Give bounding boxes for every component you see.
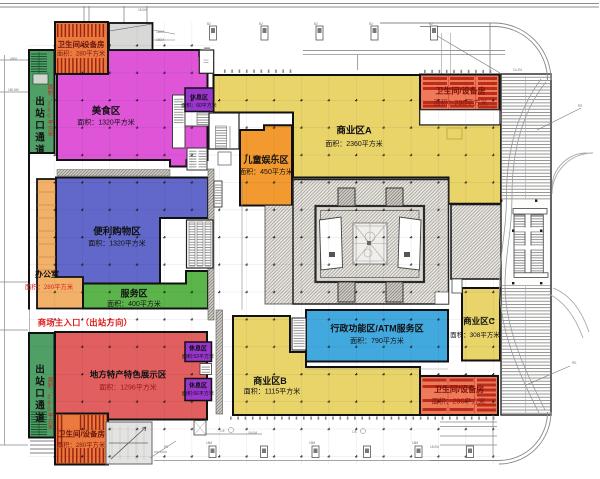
svg-text:面积：280平方米: 面积：280平方米 xyxy=(57,49,106,58)
svg-text:面积：60平方米: 面积：60平方米 xyxy=(181,102,217,109)
svg-text:14.2M: 14.2M xyxy=(513,68,522,72)
svg-text:休息区: 休息区 xyxy=(188,382,207,390)
svg-text:18M: 18M xyxy=(206,441,213,445)
svg-text:面积：790平方米: 面积：790平方米 xyxy=(350,336,404,345)
svg-text:商场主入口（出站方向）: 商场主入口（出站方向） xyxy=(38,318,133,328)
svg-text:面积：290平方米: 面积：290平方米 xyxy=(432,397,486,406)
svg-text:18M: 18M xyxy=(309,441,316,445)
svg-text:面积：280平方米: 面积：280平方米 xyxy=(57,440,106,449)
svg-text:办公室: 办公室 xyxy=(35,269,59,279)
svg-text:4500: 4500 xyxy=(10,57,17,61)
svg-text:面积：1296平方米: 面积：1296平方米 xyxy=(99,383,157,392)
svg-text:商业区C: 商业区C xyxy=(463,316,495,326)
svg-text:面积：400平方米: 面积：400平方米 xyxy=(107,299,161,308)
svg-text:18M: 18M xyxy=(412,441,419,445)
svg-text:行政功能区/ATM服务区: 行政功能区/ATM服务区 xyxy=(329,323,423,334)
svg-text:RS: RS xyxy=(578,104,582,108)
svg-text:面积：260平方米: 面积：260平方米 xyxy=(46,84,53,138)
svg-text:面积：290平方米: 面积：290平方米 xyxy=(434,98,488,107)
svg-text:面积：308平方米: 面积：308平方米 xyxy=(450,330,500,339)
svg-text:B2: B2 xyxy=(429,22,433,26)
svg-text:B2: B2 xyxy=(314,22,318,26)
svg-text:PS: PS xyxy=(164,445,168,449)
svg-text:面积：2360平方米: 面积：2360平方米 xyxy=(325,139,383,148)
svg-text:服务区: 服务区 xyxy=(120,288,147,299)
svg-text:面积：450平方米: 面积：450平方米 xyxy=(239,167,293,176)
svg-text:商业区B: 商业区B xyxy=(253,375,287,386)
svg-text:出站口通道: 出站口通道 xyxy=(33,95,45,156)
svg-text:B2: B2 xyxy=(207,22,211,26)
svg-text:面积：1320平方米: 面积：1320平方米 xyxy=(88,239,146,248)
svg-text:18.0M: 18.0M xyxy=(430,445,439,449)
svg-text:面积：280平方米: 面积：280平方米 xyxy=(25,282,74,291)
svg-text:1:8: 1:8 xyxy=(352,430,357,434)
svg-text:儿童娱乐区: 儿童娱乐区 xyxy=(242,154,288,165)
svg-text:卫生间/设备房: 卫生间/设备房 xyxy=(58,429,106,439)
svg-text:卫生间/设备房: 卫生间/设备房 xyxy=(435,86,485,96)
svg-text:180M: 180M xyxy=(156,30,164,34)
svg-text:面积:66平方米: 面积:66平方米 xyxy=(182,390,214,397)
svg-text:商业区A: 商业区A xyxy=(336,125,372,137)
svg-text:B2: B2 xyxy=(259,22,263,26)
svg-text:卫生间/设备房: 卫生间/设备房 xyxy=(434,384,484,394)
svg-text:1:8: 1:8 xyxy=(220,429,225,433)
svg-text:RS: RS xyxy=(572,361,576,365)
svg-text:休息区: 休息区 xyxy=(188,345,207,353)
svg-text:出站口通道: 出站口通道 xyxy=(33,363,45,424)
svg-text:地方特产特色展示区: 地方特产特色展示区 xyxy=(90,370,167,380)
svg-text:美食区: 美食区 xyxy=(91,105,121,117)
svg-text:B2: B2 xyxy=(369,22,373,26)
svg-text:150.6M: 150.6M xyxy=(8,88,19,92)
svg-text:18.0M: 18.0M xyxy=(138,8,147,12)
svg-text:休息区: 休息区 xyxy=(189,94,208,102)
svg-text:面积：260平方米: 面积：260平方米 xyxy=(46,377,53,431)
svg-text:卫生间/设备房: 卫生间/设备房 xyxy=(57,39,105,49)
svg-text:面积：1115平方米: 面积：1115平方米 xyxy=(244,387,301,396)
svg-text:180M: 180M xyxy=(156,38,164,42)
svg-text:便利购物区: 便利购物区 xyxy=(93,226,141,238)
svg-text:面积：1320平方米: 面积：1320平方米 xyxy=(77,118,135,127)
svg-text:面积:53平方米: 面积:53平方米 xyxy=(182,353,214,360)
svg-text:18.0M: 18.0M xyxy=(248,431,257,435)
